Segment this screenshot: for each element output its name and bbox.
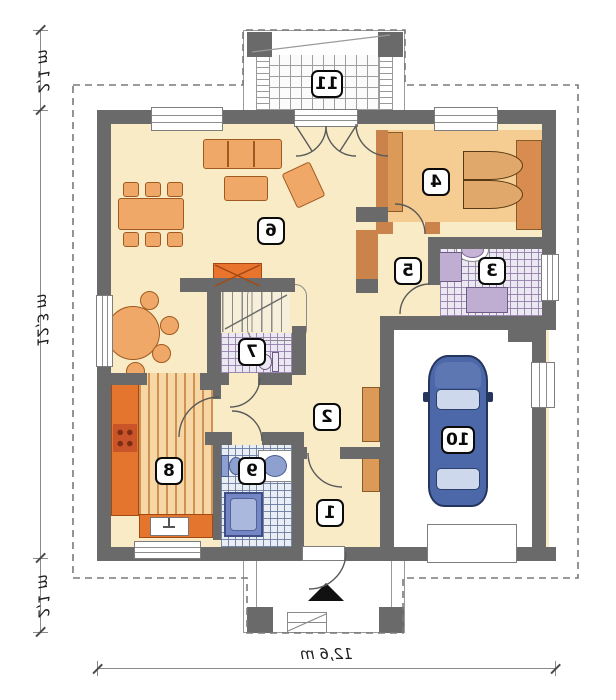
room-label-8: 8 bbox=[155, 457, 183, 485]
dim-label-bottom: 12,6 m bbox=[276, 643, 376, 665]
plan-linework bbox=[0, 0, 616, 700]
terrace-slope-line bbox=[252, 35, 390, 52]
kitchen-door-arc bbox=[179, 397, 219, 437]
stair-diagonal bbox=[225, 295, 287, 329]
hall-vestibule-door-arc bbox=[308, 453, 342, 487]
floor-plan: 1 2 3 4 5 6 7 8 9 10 11 2,1 m 12,3 m 2,1… bbox=[0, 0, 616, 700]
room-label-11: 11 bbox=[311, 70, 343, 98]
balcony-door-arc-left bbox=[296, 126, 326, 156]
room-label-2: 2 bbox=[313, 403, 341, 431]
wc7-door-arc bbox=[230, 377, 260, 407]
entrance-door-arc bbox=[309, 552, 346, 589]
dim-label-left-middle: 12,3 m bbox=[26, 285, 58, 355]
room-label-4: 4 bbox=[422, 168, 450, 196]
room-label-6: 6 bbox=[257, 217, 285, 245]
room-label-1: 1 bbox=[316, 499, 344, 527]
porch-step-diagonal bbox=[288, 614, 326, 631]
room-label-10: 10 bbox=[441, 426, 475, 454]
bedroom-door-arc bbox=[395, 204, 425, 234]
balcony-door-leaf-left bbox=[296, 126, 312, 151]
dim-label-left-top: 2,1 m bbox=[28, 41, 60, 101]
room-label-9: 9 bbox=[238, 457, 266, 485]
bath3-door-arc bbox=[400, 284, 430, 314]
room-label-7: 7 bbox=[238, 338, 266, 366]
bath9-door-arc bbox=[232, 411, 262, 441]
balcony-door-leaf-right bbox=[340, 126, 356, 151]
room-label-5: 5 bbox=[394, 257, 422, 285]
dim-line-bottom bbox=[97, 668, 555, 669]
balcony-door-arc-right bbox=[326, 126, 356, 156]
fireplace-x bbox=[215, 265, 260, 286]
dim-label-left-bottom: 2,1 m bbox=[28, 566, 60, 626]
room-label-3: 3 bbox=[478, 257, 506, 285]
roof-outline-dashed bbox=[73, 30, 578, 633]
living-bedroom-door-arc bbox=[356, 124, 388, 156]
